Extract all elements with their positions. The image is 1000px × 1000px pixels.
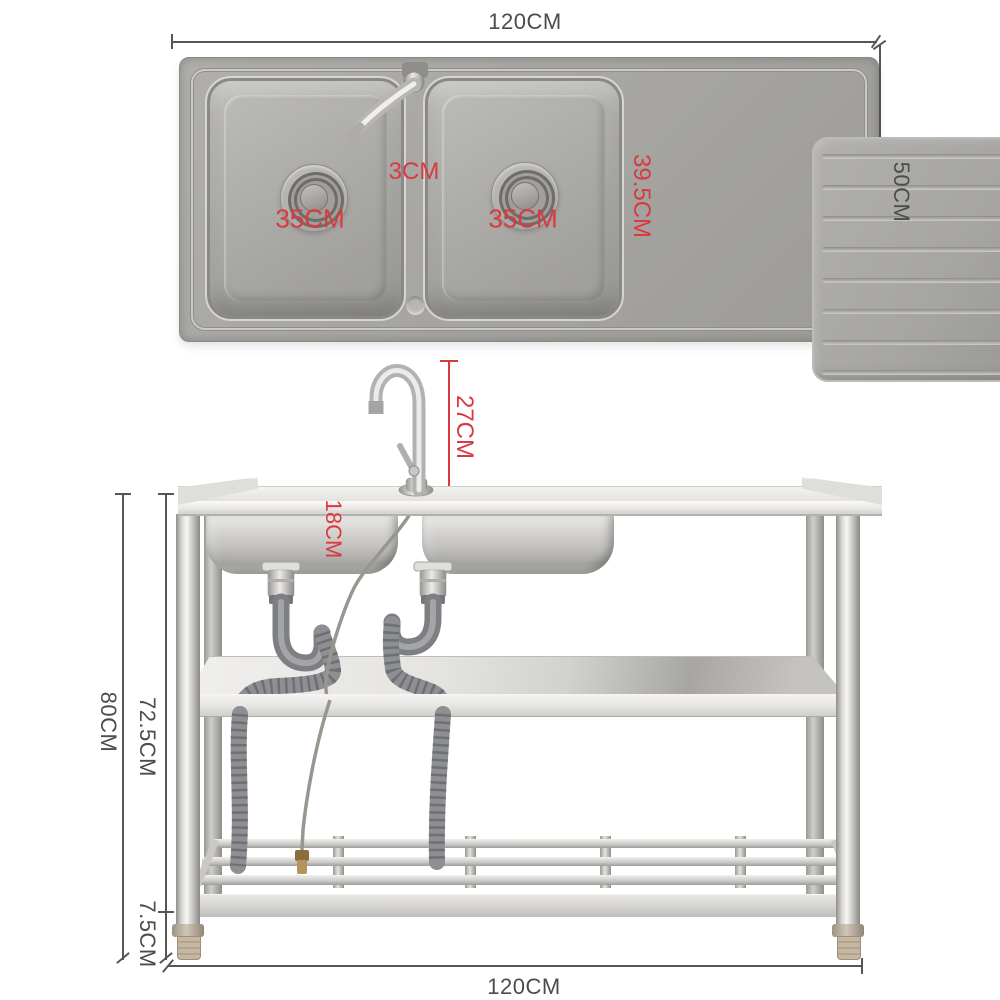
drainboard-groove [822, 340, 1000, 345]
dim-label-total-height: 80CM [95, 692, 121, 753]
dim-label-foot-height: 7.5CM [134, 900, 160, 967]
drainboard-groove [822, 154, 1000, 159]
bottom-apron [198, 894, 846, 917]
dim-line-top-width [172, 41, 877, 43]
counter-top [178, 486, 882, 502]
leg-front-right [836, 514, 860, 928]
faucet-gooseneck [376, 371, 419, 490]
drainboard-groove [822, 309, 1000, 314]
dim-line-bottom-width [168, 965, 862, 967]
right-s-trap [392, 602, 433, 647]
dim-label-right-bowl-width: 35CM [488, 204, 557, 235]
faucet-supply-hose-lower [302, 700, 330, 850]
dim-label-top-width: 120CM [488, 9, 561, 35]
sink-dimension-diagram: 120CM 50CM 80CM 72.5CM 7.5CM 120CM 35CM … [0, 0, 1000, 1000]
dim-tick-red [440, 360, 458, 362]
dim-label-bowl-length: 39.5CM [627, 154, 655, 238]
left-bowl-front [206, 514, 398, 574]
bottom-grid-slat-mid [202, 857, 850, 866]
drainboard-groove [822, 370, 1000, 375]
faucet-handle [400, 446, 413, 470]
right-bowl-front [422, 514, 614, 574]
middle-shelf-front-edge [184, 694, 848, 717]
drainboard-groove [822, 247, 1000, 252]
faucet-front-view [376, 371, 433, 496]
leg-front-left [176, 514, 200, 928]
counter-front-edge [178, 501, 882, 516]
dim-line-total-height [122, 494, 124, 960]
dim-tick [861, 958, 863, 974]
foot-left [177, 936, 201, 960]
bottom-grid-slat-back [212, 839, 836, 848]
dim-label-left-bowl-width: 35CM [275, 204, 344, 235]
dim-tick [171, 34, 173, 49]
dim-tick [158, 493, 174, 495]
left-s-trap [281, 602, 322, 663]
middle-shelf-surface [186, 656, 846, 696]
dim-label-bottom-width: 120CM [487, 974, 560, 1000]
drainboard-groove [822, 278, 1000, 283]
dim-tick [115, 493, 131, 495]
dim-label-depth: 50CM [888, 162, 914, 223]
dim-label-frame-height: 72.5CM [134, 697, 160, 777]
deck-hole [406, 296, 425, 315]
dim-label-faucet-height: 27CM [450, 395, 478, 459]
bottom-grid-slat-front [192, 875, 856, 885]
top-view-sink [179, 57, 879, 342]
dim-line-frame-height [165, 494, 167, 960]
dim-tick [158, 911, 174, 913]
foot-right [837, 936, 861, 960]
dim-label-bowl-gap: 3CM [389, 158, 440, 186]
dim-label-bowl-depth: 18CM [320, 500, 346, 559]
